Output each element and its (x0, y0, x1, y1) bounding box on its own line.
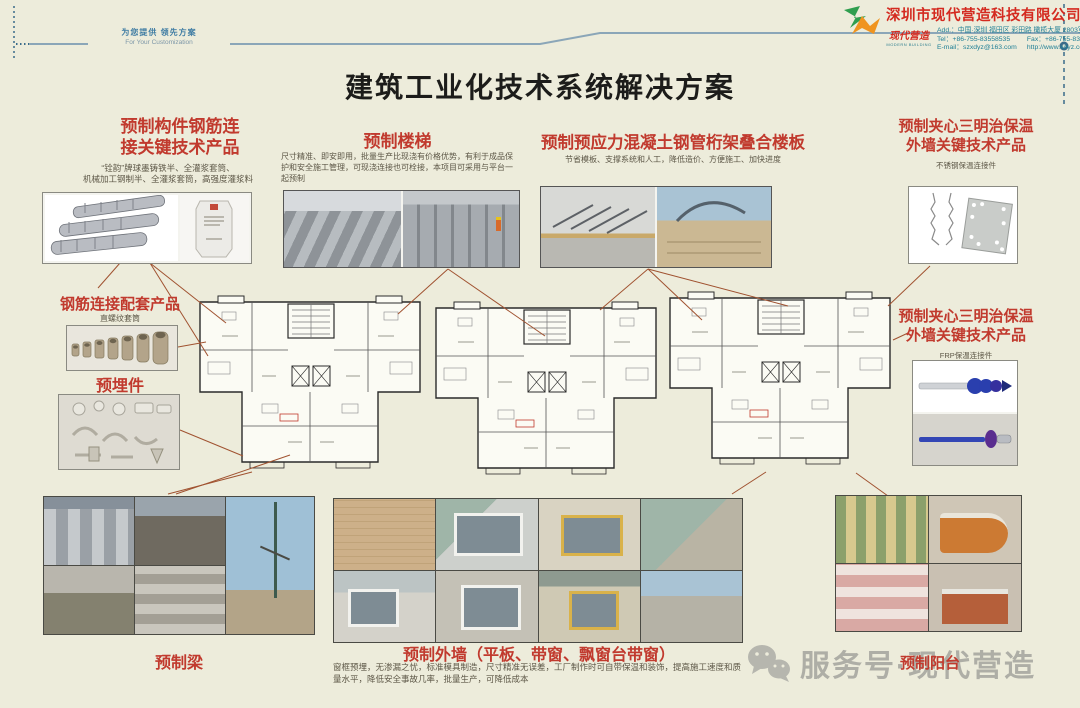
tagline: 为您提供 领先方案 For Your Customization (88, 27, 230, 46)
company-website: http://www.xdyz.com.cn/ (1027, 44, 1080, 53)
tagline-cn: 为您提供 领先方案 (88, 27, 230, 38)
section-title-balcony: 预制阳台 (878, 652, 982, 673)
photo-slab-group (540, 186, 772, 268)
section-title-embed: 预埋件 (36, 372, 204, 396)
photo-grout-products (42, 192, 252, 264)
photo-balcony-facade-pink (836, 564, 928, 631)
worker-figure (496, 217, 501, 231)
photo-slab-truss (541, 187, 655, 267)
company-header: 深圳市现代营造科技有限公司 现代营造 MODERN BUILDING Add.：… (840, 4, 1072, 53)
photo-beam-crane (226, 497, 314, 634)
poster: 为您提供 领先方案 For Your Customization 深圳市现代营造… (0, 0, 1080, 708)
section-title-slab: 预制预应力混凝土钢管桁架叠合楼板 (518, 129, 828, 153)
photo-frp-connector-1 (913, 361, 1017, 412)
section-desc-stairs: 尺寸精准、即安即用，批量生产比现浇有价格优势，有利于成品保护和安全施工管理，可现… (281, 151, 518, 184)
window (569, 591, 620, 630)
page-title: 建筑工业化技术系统解决方案 (0, 66, 1080, 106)
section-desc-rebar: “铨韵”牌球墨铸铁半、全灌浆套筒、 机械加工钢制半、全灌浆套筒，高强度灌浆料 (30, 163, 306, 185)
photo-wall-window-panel (436, 499, 537, 570)
photo-beam-grid (44, 497, 225, 634)
photo-wall-gray-panel (436, 571, 537, 642)
section-sub-sandwich-top: 不锈钢保温连接件 (868, 160, 1064, 171)
section-title-rebar: 预制构件钢筋连 接关键技术产品 (58, 116, 302, 158)
photo-stairs-group (283, 190, 520, 268)
company-logo-script: 现代营造 MODERN BUILDING (886, 27, 932, 53)
photo-beam-site-aerial (135, 497, 225, 565)
photo-beam-factory (44, 497, 134, 565)
crane-mast (274, 502, 277, 598)
photo-embedded-parts (58, 394, 180, 470)
company-email: E-mail：szxdyz@163.com (937, 44, 1025, 53)
photo-grout-bag (180, 195, 249, 261)
brick-balcony (942, 589, 1008, 623)
photo-wall-brick-panel (334, 499, 435, 570)
company-logo-icon (840, 4, 882, 42)
floor-plan-image (192, 286, 907, 481)
company-address: Add.：中国·深圳 福田区 彩田路 橄榄大厦 2803室 (937, 27, 1080, 36)
company-info: 深圳市现代营造科技有限公司 现代营造 MODERN BUILDING Add.：… (886, 4, 1080, 53)
company-tel: Tel：+86-755-83558535 (937, 36, 1025, 45)
photo-beam-stack (135, 566, 225, 634)
photo-wall-yellow-panel (539, 571, 640, 642)
section-title-beam: 预制梁 (43, 649, 315, 673)
photo-beam-group (43, 496, 315, 635)
window (461, 585, 522, 629)
photo-beam-formwork (44, 566, 134, 634)
company-contacts: Add.：中国·深圳 福田区 彩田路 橄榄大厦 2803室 Tel：+86-75… (937, 27, 1080, 53)
photo-wall-yard (641, 499, 742, 570)
section-title-sandwich-right: 预制夹心三明治保温 外墙关键技术产品 (866, 307, 1066, 345)
tagline-en: For Your Customization (88, 39, 230, 46)
photo-balcony-group (835, 495, 1022, 632)
section-desc-wall: 窗框预埋，无渗漏之忧，标准模具制造，尺寸精准无误差，工厂制作时可自带保温和装饰，… (333, 662, 747, 685)
photo-wall-yellow-frame (539, 499, 640, 570)
curved-balcony (940, 513, 1008, 553)
photo-slab-site (657, 187, 771, 267)
company-fax: Fax：+86-755-83467136 (1027, 36, 1080, 45)
photo-stairs-storage (403, 191, 520, 267)
photo-grout-sleeves (45, 195, 178, 261)
section-title-stairs: 预制楼梯 (300, 127, 495, 152)
section-sub-coupler: 直螺纹套筒 (36, 313, 204, 324)
photo-frp-connector-2 (913, 414, 1017, 465)
photo-stairs-stacked (284, 191, 401, 267)
photo-frp-group (912, 360, 1018, 466)
photo-wall-group (333, 498, 743, 643)
photo-balcony-brick-unit (929, 564, 1021, 631)
section-title-coupler: 钢筋连接配套产品 (36, 293, 204, 314)
section-title-sandwich-top: 预制夹心三明治保温 外墙关键技术产品 (868, 117, 1064, 155)
wechat-icon (746, 643, 792, 683)
photo-balcony-facade-green (836, 496, 928, 563)
photo-balcony-curved-unit (929, 496, 1021, 563)
photo-wall-storage (641, 571, 742, 642)
window (348, 589, 399, 626)
window (561, 515, 624, 557)
drawing-steel-connector (908, 186, 1018, 264)
company-name: 深圳市现代营造科技有限公司 (886, 4, 1080, 25)
section-desc-slab: 节省模板、支撑系统和人工，降低造价、方便施工、加快进度 (528, 154, 818, 165)
photo-wall-corner-panel (334, 571, 435, 642)
window (454, 513, 523, 556)
photo-threaded-couplers (66, 325, 178, 371)
